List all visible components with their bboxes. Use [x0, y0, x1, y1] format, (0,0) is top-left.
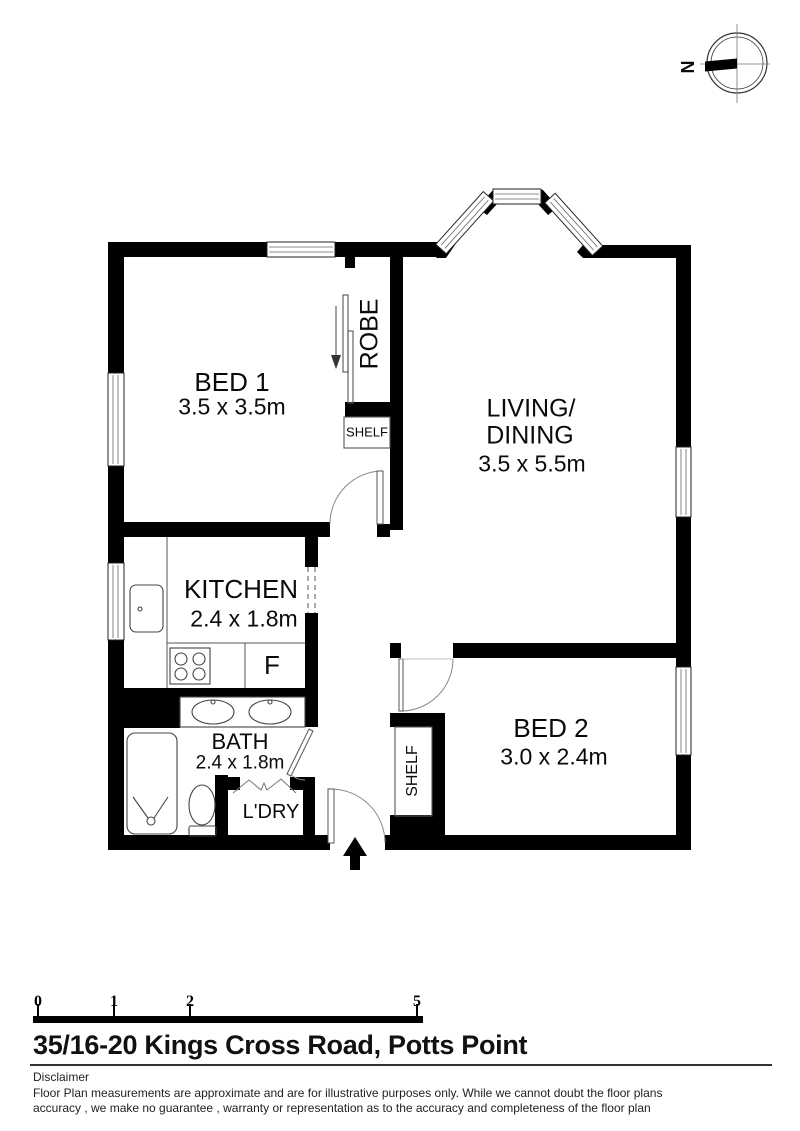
compass — [700, 24, 770, 103]
kitchen-left-window — [108, 563, 124, 640]
toilet — [189, 785, 216, 836]
compass-north-label: N — [679, 61, 697, 74]
bath-dims: 2.4 x 1.8m — [196, 754, 285, 773]
laundry-label: L'DRY — [243, 802, 300, 822]
scale-tick-0: 0 — [34, 993, 42, 1011]
bed2-door — [399, 659, 453, 711]
scale-tick-2: 2 — [186, 993, 194, 1011]
bed2-dims: 3.0 x 2.4m — [500, 746, 607, 769]
property-address: 35/16-20 Kings Cross Road, Potts Point — [33, 1030, 527, 1061]
robe-sliding-door — [331, 295, 353, 403]
bed2-right-window — [676, 667, 691, 755]
kitchen-pass-through — [308, 567, 315, 613]
bath-name: BATH — [211, 731, 268, 753]
bay-window-right — [545, 193, 603, 255]
scale-tick-5: 5 — [413, 993, 421, 1011]
living-name-line2: DINING — [486, 424, 574, 449]
stove-cooktop — [170, 648, 210, 684]
bed1-name: BED 1 — [194, 369, 269, 395]
robe-label: ROBE — [358, 299, 383, 370]
shelf-bed1-label: SHELF — [346, 426, 388, 439]
living-right-window — [676, 447, 691, 517]
bed1-top-window — [267, 242, 335, 257]
living-dims: 3.5 x 5.5m — [478, 453, 585, 476]
bed1-door — [330, 471, 383, 524]
disclaimer-line1: Floor Plan measurements are approximate … — [33, 1086, 662, 1100]
kitchen-name: KITCHEN — [184, 576, 298, 602]
entry-door — [328, 789, 385, 843]
bay-window-left — [436, 192, 494, 254]
disclaimer-title: Disclaimer — [33, 1070, 89, 1084]
kitchen-sink — [130, 585, 163, 632]
living-name-line1: LIVING/ — [487, 397, 576, 422]
compass-needle — [705, 59, 737, 72]
laundry-bifold-door — [233, 779, 296, 793]
disclaimer-line2: accuracy , we make no guarantee , warran… — [33, 1101, 651, 1115]
bath-door — [287, 729, 313, 780]
bed1-dims: 3.5 x 3.5m — [178, 396, 285, 419]
floorplan-page: BED 1 3.5 x 3.5m ROBE SHELF LIVING/ DINI… — [0, 0, 800, 1131]
scale-bar — [33, 1004, 423, 1023]
scale-tick-1: 1 — [110, 993, 118, 1011]
bed2-name: BED 2 — [513, 715, 588, 741]
bathroom-vanity — [180, 697, 305, 727]
shelf-bed2-label: SHELF — [405, 745, 421, 797]
bed1-left-window — [108, 373, 124, 466]
bay-window-top — [493, 189, 541, 204]
kitchen-dims: 2.4 x 1.8m — [190, 608, 297, 631]
divider-line — [30, 1064, 772, 1066]
floorplan-graphics — [0, 0, 800, 1131]
entry-arrow — [343, 837, 367, 870]
shower — [127, 733, 177, 834]
fridge-label: F — [264, 652, 280, 678]
